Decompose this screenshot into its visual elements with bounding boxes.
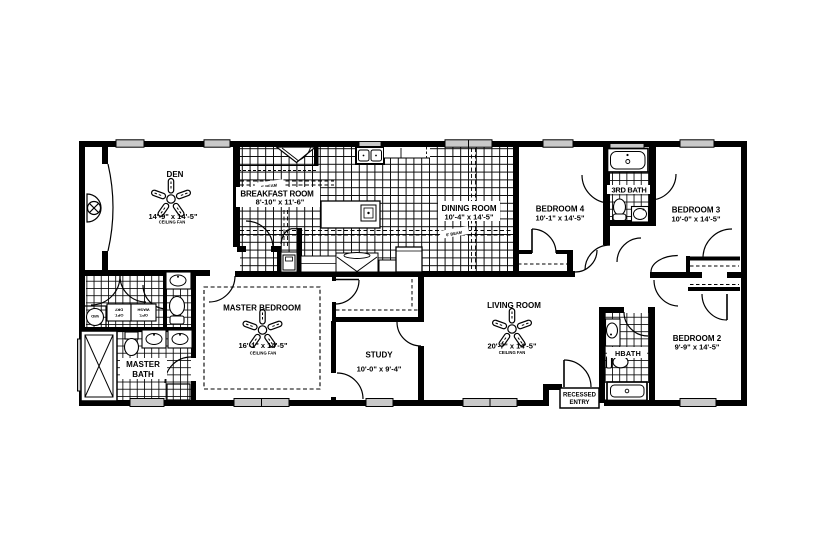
svg-text:MASTER: MASTER	[126, 360, 160, 369]
svg-text:W/D: W/D	[91, 314, 99, 319]
svg-text:9'-9" x 14'-5": 9'-9" x 14'-5"	[675, 343, 720, 352]
svg-text:DEN: DEN	[167, 170, 184, 179]
svg-text:WASH: WASH	[137, 308, 149, 313]
svg-text:CEILING FAN: CEILING FAN	[250, 351, 277, 356]
svg-text:3RD BATH: 3RD BATH	[612, 186, 647, 195]
svg-text:10'-0" x 9'-4": 10'-0" x 9'-4"	[357, 365, 402, 374]
svg-text:MASTER BEDROOM: MASTER BEDROOM	[223, 304, 301, 313]
svg-text:8'-10" x 11'-6": 8'-10" x 11'-6"	[256, 198, 305, 207]
svg-text:STUDY: STUDY	[365, 350, 393, 359]
svg-text:HBATH: HBATH	[615, 349, 641, 358]
svg-text:10'-4" x 14'-5": 10'-4" x 14'-5"	[444, 213, 493, 222]
svg-text:CEILING FAN: CEILING FAN	[159, 220, 186, 225]
svg-text:10'-1" x 14'-5": 10'-1" x 14'-5"	[535, 213, 584, 222]
svg-text:BATH: BATH	[132, 370, 154, 379]
svg-text:DRY: DRY	[115, 308, 124, 313]
svg-text:16'-1" x 14'-5": 16'-1" x 14'-5"	[238, 341, 287, 350]
svg-text:CEILING FAN: CEILING FAN	[499, 350, 526, 355]
svg-text:BEDROOM 3: BEDROOM 3	[672, 206, 721, 215]
svg-text:BEDROOM 4: BEDROOM 4	[536, 205, 585, 214]
svg-text:10'-0" x 14'-5": 10'-0" x 14'-5"	[671, 215, 720, 224]
svg-text:LIVING ROOM: LIVING ROOM	[487, 301, 541, 310]
svg-text:RECESSED: RECESSED	[563, 393, 597, 399]
svg-text:ENTRY: ENTRY	[569, 400, 589, 406]
svg-text:DINING ROOM: DINING ROOM	[441, 204, 496, 213]
svg-text:OPT.: OPT.	[139, 313, 148, 318]
svg-text:OPT.: OPT.	[115, 313, 124, 318]
